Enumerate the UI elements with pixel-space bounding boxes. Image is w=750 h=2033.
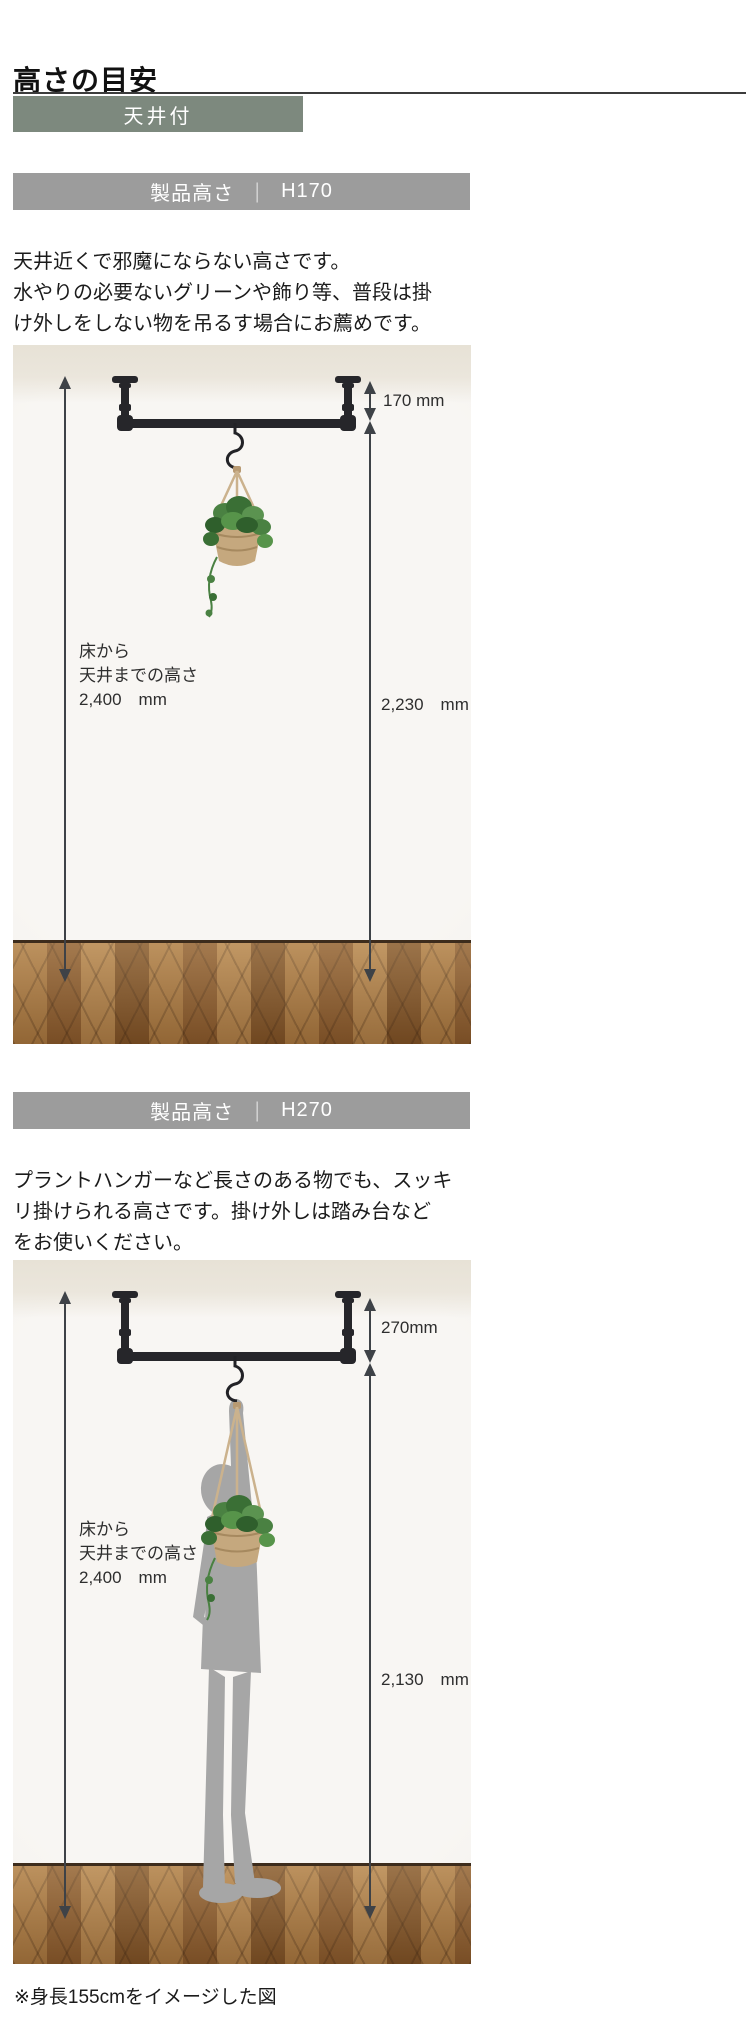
section-header-h270: 製品高さ ｜ H270: [13, 1092, 470, 1129]
section-description-h270: プラントハンガーなど長さのある物でも、スッキ リ掛けられる高さです。掛け外しは踏…: [13, 1166, 452, 1259]
product-height-arrow: [369, 383, 371, 419]
product-height-label: 170 mm: [383, 389, 444, 413]
s-hook-icon: [227, 423, 242, 468]
section-header-separator: ｜: [247, 177, 268, 206]
section-header-label: 製品高さ: [150, 177, 234, 206]
floor-label-line: 2,400 mm: [79, 688, 198, 712]
floor-label-line: 2,400 mm: [79, 1566, 198, 1590]
mount-type-tag: 天井付: [13, 96, 303, 132]
description-line: 水やりの必要ないグリーンや飾り等、普段は掛: [13, 278, 432, 309]
description-line: リ掛けられる高さです。掛け外しは踏み台など: [13, 1197, 452, 1228]
bar-to-floor-arrow: [369, 1365, 371, 1917]
description-line: プラントハンガーなど長さのある物でも、スッキ: [13, 1166, 452, 1197]
section-description-h170: 天井近くで邪魔にならない高さです。 水やりの必要ないグリーンや飾り等、普段は掛 …: [13, 247, 432, 340]
floor-to-ceiling-arrow: [64, 378, 66, 980]
description-line: 天井近くで邪魔にならない高さです。: [13, 247, 432, 278]
section-header-value: H170: [281, 180, 333, 203]
wood-floor: [13, 940, 471, 1044]
description-line: をお使いください。: [13, 1228, 452, 1259]
floor-label-line: 天井までの高さ: [79, 1542, 198, 1566]
floor-to-ceiling-arrow: [64, 1293, 66, 1917]
section-header-h170: 製品高さ ｜ H170: [13, 173, 470, 210]
height-reference-footnote: ※身長155cmをイメージした図: [14, 1982, 277, 2009]
floor-label-line: 床から: [79, 640, 198, 664]
floor-to-ceiling-label: 床から 天井までの高さ 2,400 mm: [79, 640, 198, 712]
mount-type-tag-label: 天井付: [124, 100, 193, 129]
ceiling-band: [13, 1260, 471, 1318]
bar-to-floor-label: 2,230 mm: [381, 693, 469, 717]
title-underline: [13, 92, 746, 94]
s-hook-icon: [227, 1356, 242, 1401]
hanging-plant: [173, 421, 297, 621]
hanger-pipe-vertical: [344, 1296, 352, 1356]
floor-label-line: 天井までの高さ: [79, 664, 198, 688]
section-header-value: H270: [281, 1099, 333, 1122]
description-line: け外しをしない物を吊るす場合にお薦めです。: [13, 309, 432, 340]
section-header-label: 製品高さ: [150, 1096, 234, 1125]
floor-label-line: 床から: [79, 1518, 198, 1542]
bar-to-floor-label: 2,130 mm: [381, 1668, 469, 1692]
product-height-arrow: [369, 1300, 371, 1361]
height-diagram-h170: 170 mm 2,230 mm 床から 天井までの高さ 2,400 mm: [13, 345, 471, 1044]
hanger-pipe-vertical: [121, 1296, 129, 1356]
bar-to-floor-arrow: [369, 423, 371, 980]
section-header-separator: ｜: [247, 1096, 268, 1125]
product-height-label: 270mm: [381, 1316, 438, 1340]
height-diagram-h270: 270mm 2,130 mm 床から 天井までの高さ 2,400 mm: [13, 1260, 471, 1964]
product-height-guide-page: 高さの目安 天井付 製品高さ ｜ H170 天井近くで邪魔にならない高さです。 …: [0, 0, 750, 2033]
floor-to-ceiling-label: 床から 天井までの高さ 2,400 mm: [79, 1518, 198, 1590]
